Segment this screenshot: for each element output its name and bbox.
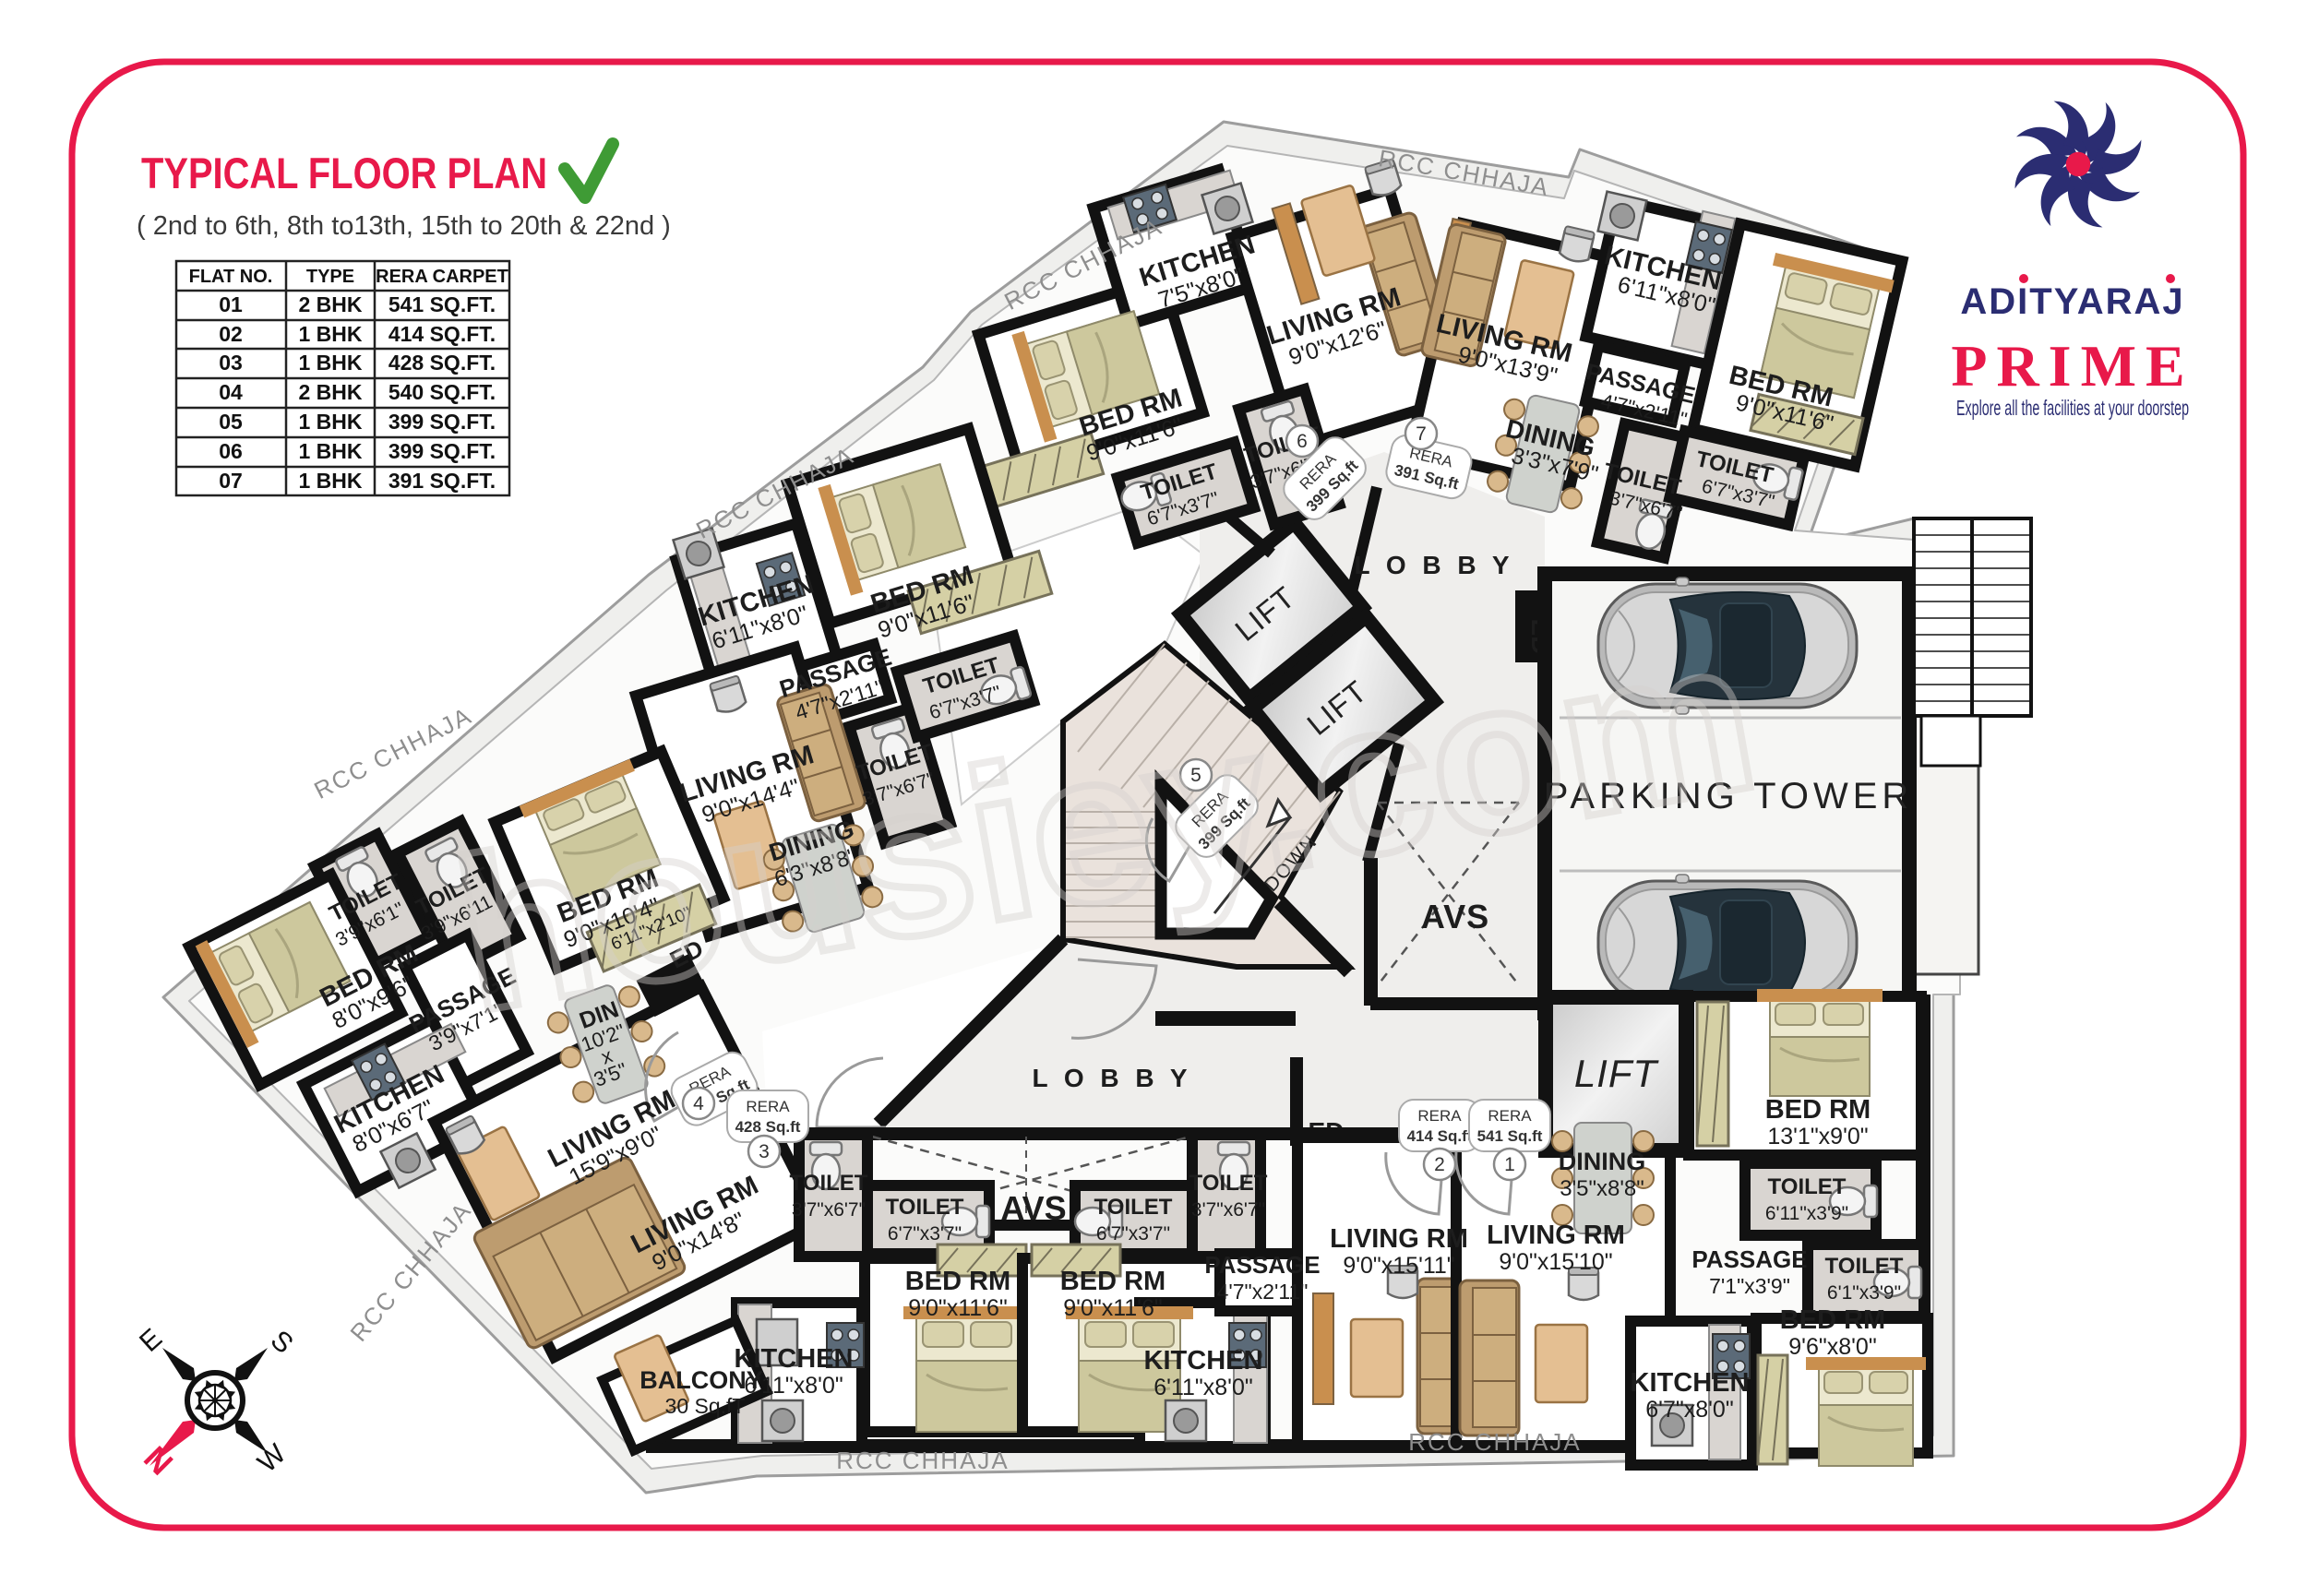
svg-text:04: 04 <box>219 380 243 404</box>
svg-text:DINING: DINING <box>1559 1148 1646 1175</box>
svg-text:6: 6 <box>1297 431 1308 452</box>
svg-text:1 BHK: 1 BHK <box>298 439 362 463</box>
svg-text:1 BHK: 1 BHK <box>298 351 362 375</box>
svg-text:L O B B Y: L O B B Y <box>1032 1064 1191 1092</box>
svg-text:3: 3 <box>759 1141 770 1162</box>
svg-text:TOILET: TOILET <box>1094 1195 1173 1220</box>
svg-text:BED RM: BED RM <box>1765 1095 1871 1125</box>
svg-text:1: 1 <box>1504 1154 1515 1175</box>
svg-text:6'11"x3'9": 6'11"x3'9" <box>1765 1203 1848 1224</box>
svg-text:PRIME: PRIME <box>1951 333 2193 399</box>
svg-text:RERA: RERA <box>1488 1107 1532 1125</box>
svg-text:TYPE: TYPE <box>306 267 354 287</box>
svg-text:2 BHK: 2 BHK <box>298 292 362 316</box>
svg-text:LIFT: LIFT <box>1574 1052 1660 1095</box>
svg-text:391 SQ.FT.: 391 SQ.FT. <box>388 469 496 493</box>
svg-text:KITCHEN: KITCHEN <box>735 1344 854 1374</box>
svg-text:07: 07 <box>219 469 243 493</box>
svg-text:428 Sq.ft: 428 Sq.ft <box>735 1118 801 1136</box>
svg-text:KITCHEN: KITCHEN <box>1631 1368 1750 1398</box>
svg-text:Explore all the facilities at: Explore all the facilities at your doors… <box>1956 396 2189 420</box>
svg-text:TOILET: TOILET <box>886 1195 964 1220</box>
svg-text:30 Sq.fT: 30 Sq.fT <box>665 1394 746 1418</box>
svg-text:RCC CHHAJA: RCC CHHAJA <box>836 1447 1010 1474</box>
svg-text:BED RM: BED RM <box>1780 1305 1885 1335</box>
svg-text:LIVING RM: LIVING RM <box>1487 1221 1625 1250</box>
svg-text:3'5"x8'8": 3'5"x8'8" <box>1560 1176 1644 1201</box>
svg-text:TOILET: TOILET <box>1189 1171 1268 1196</box>
svg-text:399 SQ.FT.: 399 SQ.FT. <box>388 410 496 434</box>
svg-text:3'7"x6'7": 3'7"x6'7" <box>792 1199 866 1221</box>
svg-text:6'7"x3'7": 6'7"x3'7" <box>1096 1223 1170 1245</box>
svg-text:RERA: RERA <box>1417 1107 1462 1125</box>
svg-text:7: 7 <box>1416 423 1427 445</box>
svg-text:541 Sq.ft: 541 Sq.ft <box>1477 1127 1543 1145</box>
svg-text:414 SQ.FT.: 414 SQ.FT. <box>388 322 496 346</box>
svg-text:TOILET: TOILET <box>1825 1254 1904 1279</box>
svg-text:9'6"x8'0": 9'6"x8'0" <box>1788 1334 1876 1360</box>
svg-text:TYPICAL FLOOR PLAN: TYPICAL FLOOR PLAN <box>141 149 547 197</box>
svg-text:4'7"x2'11": 4'7"x2'11" <box>1217 1280 1309 1304</box>
svg-text:7'1"x3'9": 7'1"x3'9" <box>1709 1274 1790 1298</box>
svg-text:9'0"x15'11": 9'0"x15'11" <box>1343 1253 1454 1279</box>
svg-text:05: 05 <box>219 410 243 434</box>
svg-text:01: 01 <box>219 292 243 316</box>
svg-text:PASSAGE: PASSAGE <box>1204 1251 1320 1279</box>
svg-text:6'1"x3'9": 6'1"x3'9" <box>1827 1282 1901 1304</box>
svg-text:RERA: RERA <box>746 1098 790 1115</box>
svg-text:KITCHEN: KITCHEN <box>1144 1346 1263 1376</box>
svg-text:FLAT NO.: FLAT NO. <box>189 267 273 287</box>
svg-text:TOILET: TOILET <box>790 1171 868 1196</box>
svg-text:06: 06 <box>219 439 243 463</box>
svg-text:13'1"x9'0": 13'1"x9'0" <box>1767 1124 1868 1149</box>
svg-text:6'7"x8'0": 6'7"x8'0" <box>1645 1397 1733 1423</box>
svg-text:1 BHK: 1 BHK <box>298 322 362 346</box>
svg-text:3'7"x6'7": 3'7"x6'7" <box>1191 1199 1265 1221</box>
svg-text:414 Sq.ft: 414 Sq.ft <box>1407 1127 1473 1145</box>
svg-text:9'0"x15'10": 9'0"x15'10" <box>1499 1249 1612 1275</box>
svg-text:399 SQ.FT.: 399 SQ.FT. <box>388 439 496 463</box>
svg-text:03: 03 <box>219 351 243 375</box>
svg-text:1 BHK: 1 BHK <box>298 410 362 434</box>
svg-text:BED RM: BED RM <box>1060 1267 1165 1296</box>
svg-text:9'0"x11'6": 9'0"x11'6" <box>908 1295 1007 1321</box>
svg-text:6'11"x8'0": 6'11"x8'0" <box>744 1373 843 1399</box>
svg-text:428 SQ.FT.: 428 SQ.FT. <box>388 351 496 375</box>
svg-text:02: 02 <box>219 322 243 346</box>
svg-text:RERA CARPET: RERA CARPET <box>376 267 508 287</box>
svg-text:BED RM: BED RM <box>905 1267 1010 1296</box>
svg-text:PASSAGE: PASSAGE <box>1691 1245 1807 1273</box>
svg-text:6'11"x8'0": 6'11"x8'0" <box>1153 1375 1252 1400</box>
svg-text:( 2nd to 6th, 8th to13th, 15t: ( 2nd to 6th, 8th to13th, 15th to 20th &… <box>137 211 671 241</box>
svg-text:9'0"x11'6": 9'0"x11'6" <box>1063 1295 1162 1321</box>
svg-text:6'7"x3'7": 6'7"x3'7" <box>888 1223 962 1245</box>
svg-text:4: 4 <box>693 1093 704 1114</box>
svg-text:2: 2 <box>1434 1154 1445 1175</box>
svg-text:AVS: AVS <box>1421 898 1489 935</box>
svg-text:2 BHK: 2 BHK <box>298 380 362 404</box>
svg-text:541 SQ.FT.: 541 SQ.FT. <box>388 292 496 316</box>
svg-text:TOILET: TOILET <box>1768 1174 1847 1199</box>
svg-text:1 BHK: 1 BHK <box>298 469 362 493</box>
svg-text:540 SQ.FT.: 540 SQ.FT. <box>388 380 496 404</box>
svg-text:L O B B Y: L O B B Y <box>1354 551 1513 579</box>
svg-text:RCC CHHAJA: RCC CHHAJA <box>1408 1428 1582 1456</box>
svg-text:AVS: AVS <box>1000 1189 1066 1227</box>
svg-text:LIVING RM: LIVING RM <box>1330 1224 1468 1254</box>
svg-text:ADITYARAJ: ADITYARAJ <box>1960 281 2184 322</box>
